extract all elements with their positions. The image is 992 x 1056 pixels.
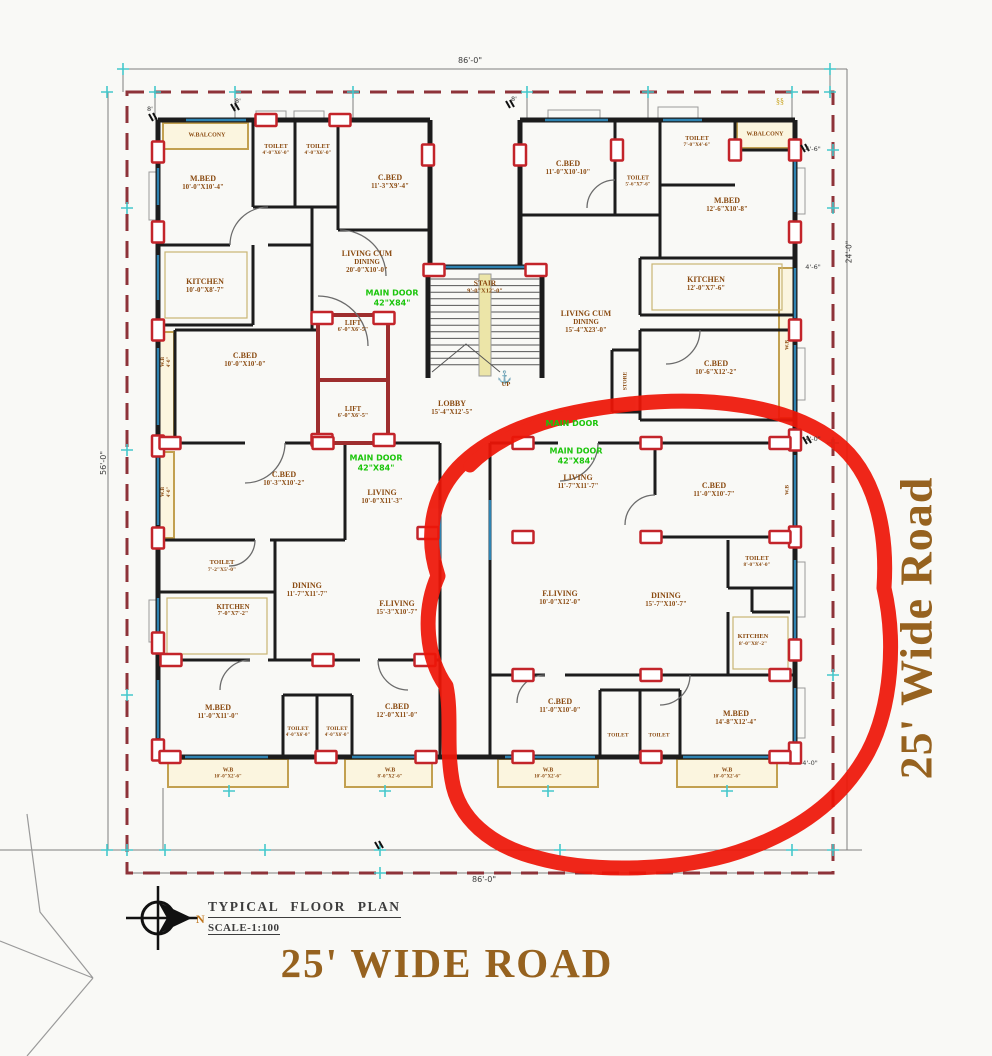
plan-title: TYPICAL FLOOR PLAN	[208, 899, 401, 918]
north-label: N	[196, 912, 205, 926]
walls	[158, 120, 795, 757]
annotation-circle	[428, 401, 890, 868]
window-sills	[149, 107, 805, 738]
windows	[158, 120, 795, 757]
floor-plan-sheet: ⚓ §§ N M.BED10'-0"X10'-4"TOILET4'-0"X6'-…	[0, 0, 992, 1056]
plan-scale: SCALE-1:100	[208, 922, 280, 935]
title-block: TYPICAL FLOOR PLAN SCALE-1:100	[208, 898, 401, 936]
floor-plan-drawing: ⚓ §§ N	[0, 0, 992, 1056]
north-compass: N	[126, 886, 205, 950]
road-label-right: 25' Wide Road	[890, 477, 943, 780]
road-label-bottom: 25' WIDE ROAD	[281, 939, 614, 987]
up-arrow-icon: ⚓	[497, 370, 512, 384]
column-mark-icon: §§	[776, 97, 784, 106]
lift-shafts	[318, 315, 388, 443]
